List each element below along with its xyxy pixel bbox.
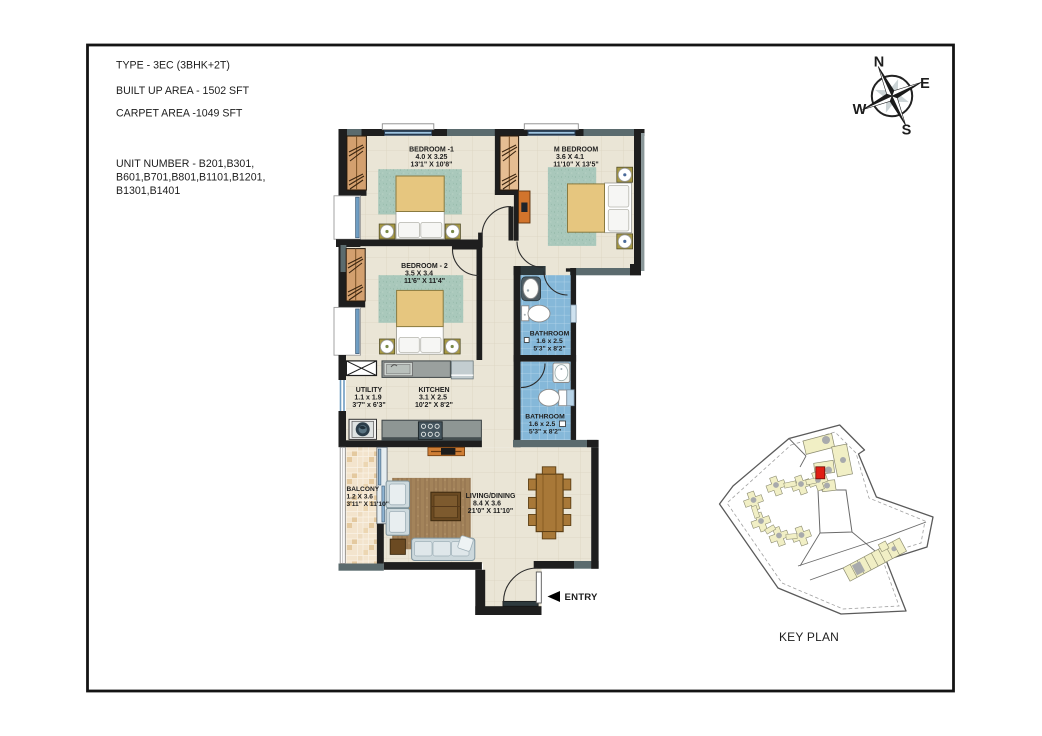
svg-text:4.0 X 3.25: 4.0 X 3.25 — [416, 154, 448, 161]
svg-text:E: E — [920, 76, 930, 92]
svg-text:M BEDROOM: M BEDROOM — [554, 147, 599, 154]
svg-text:LIVING/DINING: LIVING/DINING — [466, 493, 516, 500]
svg-text:3.1 X 2.5: 3.1 X 2.5 — [419, 395, 447, 402]
svg-text:KITCHEN: KITCHEN — [418, 387, 449, 394]
svg-text:B601,B701,B801,B1101,B1201,: B601,B701,B801,B1101,B1201, — [116, 172, 265, 184]
svg-text:5'3" x 8'2": 5'3" x 8'2" — [529, 428, 561, 435]
svg-text:1.6 x 2.5: 1.6 x 2.5 — [536, 338, 563, 345]
svg-text:3'11" X 11'10": 3'11" X 11'10" — [347, 501, 389, 508]
svg-text:11'10" X 13'5": 11'10" X 13'5" — [553, 162, 598, 169]
svg-text:CARPET AREA -1049 SFT: CARPET AREA -1049 SFT — [116, 108, 243, 120]
svg-text:21'0" X 11'10": 21'0" X 11'10" — [468, 508, 513, 515]
svg-text:1.6 x 2.5: 1.6 x 2.5 — [529, 421, 556, 428]
svg-text:ENTRY: ENTRY — [565, 592, 599, 603]
svg-text:BALCONY: BALCONY — [347, 486, 380, 493]
svg-text:UNIT NUMBER - B201,B301,: UNIT NUMBER - B201,B301, — [116, 158, 254, 170]
svg-text:W: W — [853, 102, 867, 118]
svg-text:11'6" X 11'4": 11'6" X 11'4" — [404, 278, 445, 285]
svg-text:BATHROOM: BATHROOM — [525, 413, 565, 420]
svg-text:BUILT UP AREA - 1502 SFT: BUILT UP AREA - 1502 SFT — [116, 85, 250, 97]
svg-text:UTILITY: UTILITY — [356, 387, 383, 394]
svg-text:3.5 X 3.4: 3.5 X 3.4 — [405, 271, 433, 278]
svg-text:3.6 X 4.1: 3.6 X 4.1 — [556, 154, 584, 161]
svg-text:B1301,B1401: B1301,B1401 — [116, 185, 180, 197]
svg-text:KEY PLAN: KEY PLAN — [779, 630, 839, 644]
svg-text:5'3" x 8'2": 5'3" x 8'2" — [533, 345, 565, 352]
svg-text:1.2 X 3.6: 1.2 X 3.6 — [347, 494, 374, 501]
svg-text:3'7" x 6'3": 3'7" x 6'3" — [352, 402, 385, 409]
svg-text:N: N — [874, 55, 884, 71]
svg-text:8.4 X 3.6: 8.4 X 3.6 — [473, 501, 501, 508]
svg-text:BEDROOM - 2: BEDROOM - 2 — [401, 263, 448, 270]
svg-text:BEDROOM -1: BEDROOM -1 — [409, 147, 454, 154]
svg-text:10'2" X 8'2": 10'2" X 8'2" — [415, 402, 453, 409]
svg-text:1.1 x 1.9: 1.1 x 1.9 — [354, 395, 381, 402]
svg-text:S: S — [902, 123, 912, 139]
svg-text:13'1" X 10'8": 13'1" X 10'8" — [411, 162, 453, 169]
svg-text:BATHROOM: BATHROOM — [530, 330, 570, 337]
svg-text:TYPE - 3EC (3BHK+2T): TYPE - 3EC (3BHK+2T) — [116, 60, 230, 72]
